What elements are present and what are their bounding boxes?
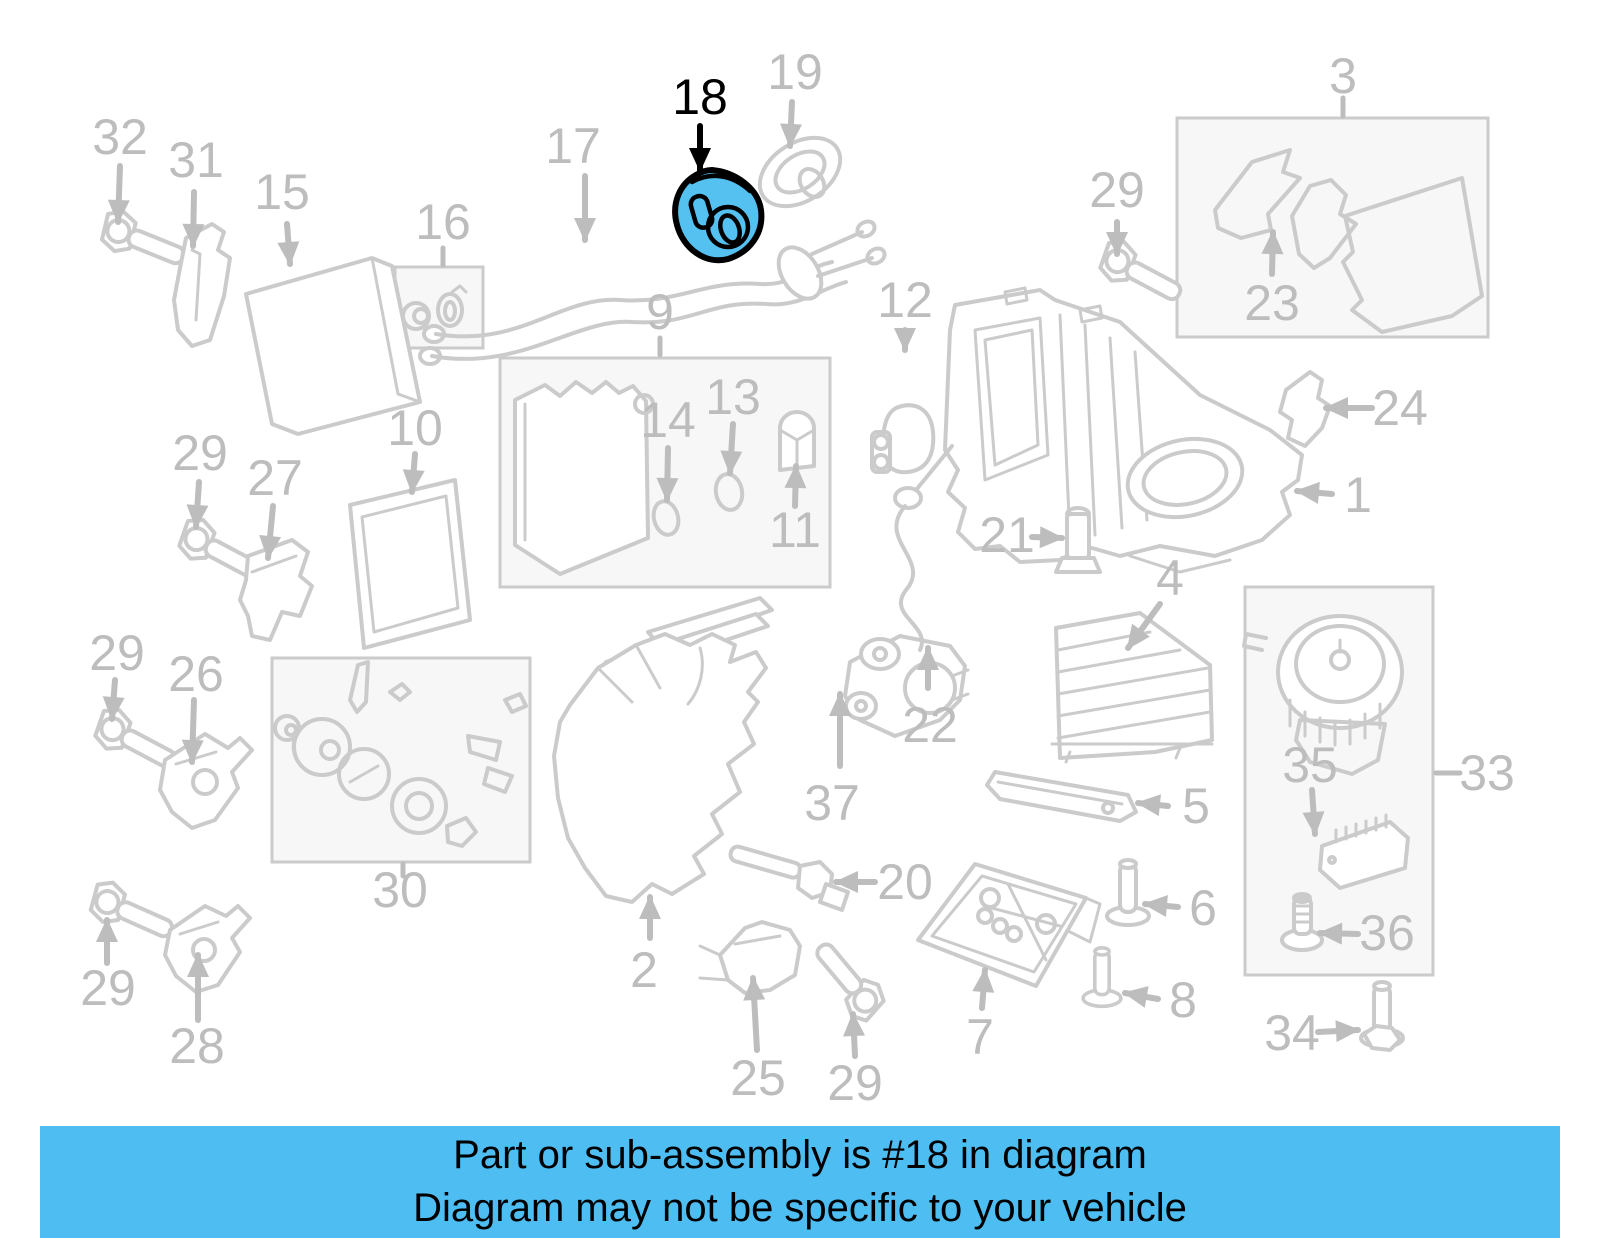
- part-20-thermistor: [729, 845, 848, 910]
- part-number-label: 8: [1169, 975, 1197, 1025]
- part-number-label: 32: [92, 112, 148, 162]
- part-10-seal-frame: [350, 480, 470, 648]
- part-number-label: 33: [1459, 748, 1515, 798]
- group-box-3: [1177, 118, 1488, 337]
- banner-line2: Diagram may not be specific to your vehi…: [413, 1182, 1187, 1235]
- part-number-label: 19: [767, 47, 823, 97]
- part-number-label: 11: [769, 505, 821, 555]
- part-number-label: 10: [387, 403, 443, 453]
- part-number-label: 25: [730, 1053, 786, 1103]
- part-number-label: 3: [1329, 51, 1357, 101]
- part-number-label: 28: [169, 1021, 225, 1071]
- part-29-bolt-bottom: [805, 934, 891, 1026]
- part-number-label: 35: [1282, 740, 1338, 790]
- part-number-label: 17: [545, 121, 601, 171]
- part-number-label: 15: [254, 167, 310, 217]
- part-24-bracket: [1280, 372, 1330, 446]
- part-27-bracket: [240, 540, 312, 640]
- part-number-label: 6: [1189, 883, 1217, 933]
- part-number-label: 7: [966, 1012, 994, 1062]
- part-25-bracket: [700, 922, 800, 993]
- part-7-tray: [918, 864, 1100, 986]
- part-12-cover: [872, 405, 933, 472]
- parts-diagram-artwork: [0, 0, 1600, 1249]
- part-29-bolt-bottomleft: [85, 877, 180, 949]
- part-number-label: 22: [902, 700, 958, 750]
- part-number-label: 16: [415, 197, 471, 247]
- part-4-cabin-filter: [1052, 613, 1212, 762]
- part-32-bolt: [96, 207, 191, 276]
- part-number-label: 27: [247, 453, 303, 503]
- banner-line1: Part or sub-assembly is #18 in diagram: [453, 1129, 1147, 1182]
- group-box-30: [272, 658, 530, 862]
- part-number-label: 30: [372, 865, 428, 915]
- part-number-label: 26: [168, 649, 224, 699]
- part-number-label: 13: [705, 372, 761, 422]
- part-number-label: 36: [1359, 908, 1415, 958]
- part-number-label: 31: [168, 135, 224, 185]
- part-5-rail: [987, 772, 1136, 821]
- part-number-label: 29: [172, 428, 228, 478]
- part-number-label: 4: [1156, 553, 1184, 603]
- part-number-label: 2: [630, 945, 658, 995]
- diagram-canvas: 3231151718193292324112169141311102927292…: [0, 0, 1600, 1249]
- part-number-label: 1: [1344, 470, 1372, 520]
- part-number-label: 23: [1244, 278, 1300, 328]
- part-6-stud: [1107, 860, 1149, 925]
- part-number-label: 5: [1182, 781, 1210, 831]
- part-number-label: 29: [89, 628, 145, 678]
- part-number-label: 20: [877, 857, 933, 907]
- part-28-bracket: [165, 906, 250, 992]
- part-number-label: 24: [1372, 383, 1428, 433]
- part-number-label: 34: [1264, 1008, 1320, 1058]
- part-number-label: 9: [646, 287, 674, 337]
- part-number-label: 29: [80, 963, 136, 1013]
- part-number-label: 14: [640, 395, 696, 445]
- part-22-hose: [895, 446, 952, 650]
- part-number-label: 37: [804, 778, 860, 828]
- part-26-bracket: [160, 734, 252, 828]
- part-number-label: 12: [877, 275, 933, 325]
- part-number-label: 29: [1089, 165, 1145, 215]
- part-number-label: 21: [979, 510, 1035, 560]
- part-29-bolt-top: [1094, 236, 1189, 312]
- part-number-label: 29: [827, 1058, 883, 1108]
- highlight-info-banner: Part or sub-assembly is #18 in diagram D…: [40, 1126, 1560, 1238]
- highlighted-part-number-label: 18: [672, 72, 728, 122]
- part-34-bolt: [1361, 982, 1403, 1050]
- part-31-bracket: [174, 224, 230, 346]
- part-8-grommet: [1083, 948, 1121, 1007]
- highlighted-part-18: [675, 126, 761, 260]
